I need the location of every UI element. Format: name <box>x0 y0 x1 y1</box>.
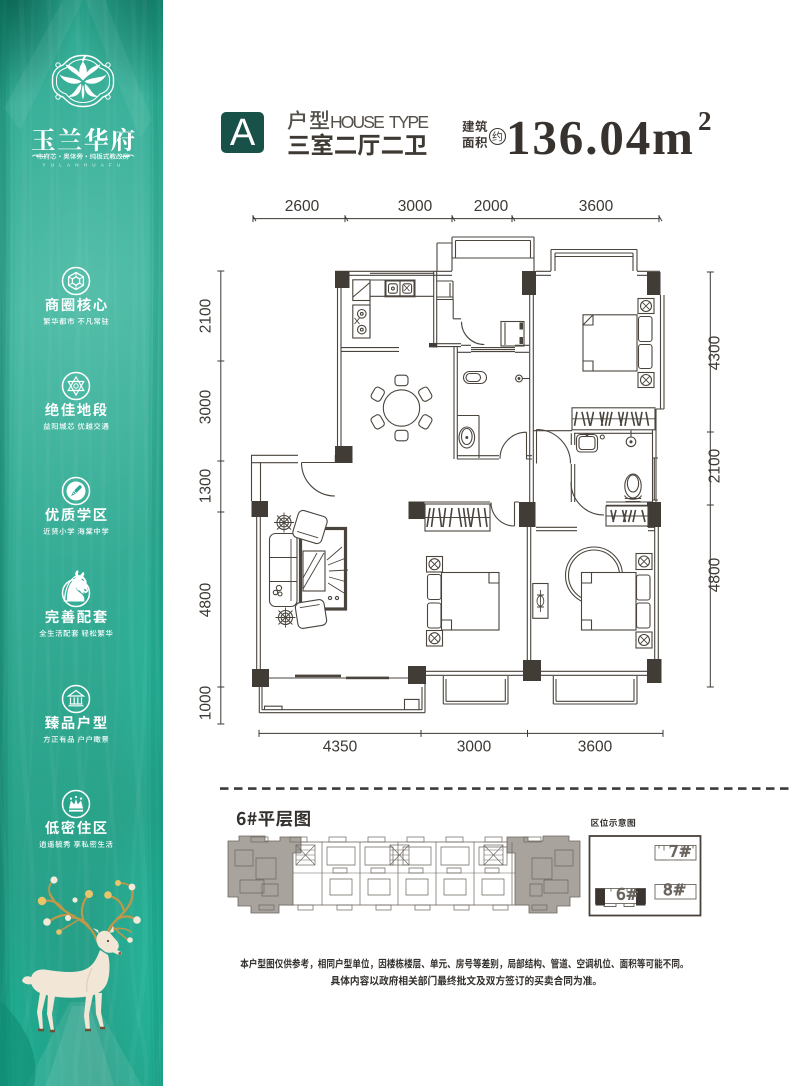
svg-text:4300: 4300 <box>707 335 724 370</box>
svg-text:2000: 2000 <box>474 198 509 215</box>
svg-text:1000: 1000 <box>198 685 215 720</box>
svg-text:4350: 4350 <box>323 739 358 756</box>
svg-text:HOUSE TYPE: HOUSE TYPE <box>330 112 429 132</box>
svg-text:2600: 2600 <box>285 198 320 215</box>
svg-text:3000: 3000 <box>457 739 492 756</box>
svg-text:A: A <box>230 112 256 154</box>
svg-text:4800: 4800 <box>707 557 724 592</box>
svg-text:3000: 3000 <box>198 389 215 424</box>
svg-text:3600: 3600 <box>579 198 614 215</box>
svg-text:136.04m: 136.04m <box>506 110 693 165</box>
svg-text:3000: 3000 <box>398 198 433 215</box>
svg-text:YULANHUAFU: YULANHUAFU <box>42 163 125 168</box>
svg-text:2: 2 <box>698 106 712 136</box>
svg-text:2100: 2100 <box>707 448 724 483</box>
svg-text:1300: 1300 <box>198 468 215 503</box>
svg-text:4800: 4800 <box>198 582 215 617</box>
svg-text:2100: 2100 <box>198 298 215 333</box>
svg-text:3600: 3600 <box>578 739 613 756</box>
